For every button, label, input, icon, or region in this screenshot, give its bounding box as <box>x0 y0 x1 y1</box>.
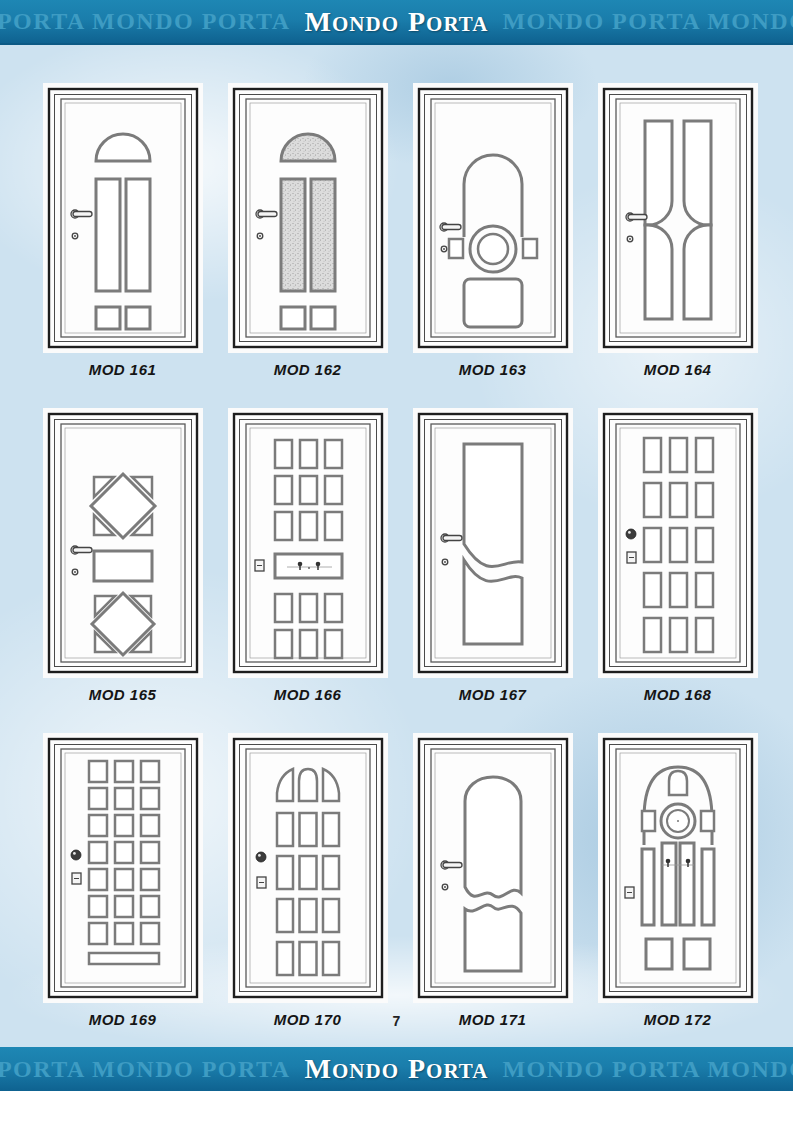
brand-logo: MONDO PORTA <box>291 6 503 38</box>
door-drawing-mod-166 <box>232 412 384 674</box>
logo-initial: M <box>305 1053 332 1085</box>
door-drawing-mod-168 <box>602 412 754 674</box>
logo-initial: P <box>408 1053 426 1085</box>
door-drawing-mod-169 <box>47 737 199 999</box>
logo-initial: M <box>305 6 332 38</box>
header-watermark-left: PORTA MONDO PORTA <box>0 8 291 35</box>
door-card-mod-161: MOD 161 <box>30 45 215 370</box>
door-card-mod-165: MOD 165 <box>30 370 215 695</box>
door-image <box>43 83 203 353</box>
door-drawing-mod-172 <box>602 737 754 999</box>
door-card-mod-169: MOD 169 <box>30 695 215 1020</box>
door-image <box>228 83 388 353</box>
door-image <box>413 83 573 353</box>
door-drawing-mod-161 <box>47 87 199 349</box>
door-drawing-mod-171 <box>417 737 569 999</box>
logo-rest: ONDO <box>332 1059 399 1084</box>
header-banner: PORTA MONDO PORTA MONDO PORTA MONDO PORT… <box>0 0 793 45</box>
page-number: 7 <box>0 1013 793 1029</box>
footer-watermark-left: PORTA MONDO PORTA <box>0 1056 291 1083</box>
logo-initial: P <box>408 6 426 38</box>
door-image <box>43 733 203 1003</box>
door-image <box>413 408 573 678</box>
door-drawing-mod-170 <box>232 737 384 999</box>
door-drawing-mod-162 <box>232 87 384 349</box>
footer-banner: PORTA MONDO PORTA MONDO PORTA MONDO PORT… <box>0 1047 793 1091</box>
sheet-background: MOD 161 MOD 162 <box>0 45 793 1047</box>
door-image <box>228 733 388 1003</box>
doors-grid: MOD 161 MOD 162 <box>30 45 770 1020</box>
door-image <box>228 408 388 678</box>
door-card-mod-166: MOD 166 <box>215 370 400 695</box>
door-card-mod-162: MOD 162 <box>215 45 400 370</box>
door-image <box>598 83 758 353</box>
door-image <box>598 408 758 678</box>
footer-watermark-right: MONDO PORTA MONDO <box>502 1056 793 1083</box>
door-drawing-mod-163 <box>417 87 569 349</box>
door-image <box>598 733 758 1003</box>
door-card-mod-172: MOD 172 <box>585 695 770 1020</box>
door-card-mod-167: MOD 167 <box>400 370 585 695</box>
catalog-page: PORTA MONDO PORTA MONDO PORTA MONDO PORT… <box>0 0 793 1122</box>
door-drawing-mod-165 <box>47 412 199 674</box>
door-card-mod-164: MOD 164 <box>585 45 770 370</box>
door-drawing-mod-167 <box>417 412 569 674</box>
door-card-mod-170: MOD 170 <box>215 695 400 1020</box>
door-image <box>43 408 203 678</box>
door-image <box>413 733 573 1003</box>
logo-rest: ONDO <box>332 12 399 37</box>
logo-rest: ORTA <box>426 1059 488 1084</box>
header-watermark-right: MONDO PORTA MONDO <box>502 8 793 35</box>
door-card-mod-171: MOD 171 <box>400 695 585 1020</box>
brand-logo: MONDO PORTA <box>291 1053 503 1085</box>
door-card-mod-163: MOD 163 <box>400 45 585 370</box>
logo-rest: ORTA <box>426 12 488 37</box>
door-drawing-mod-164 <box>602 87 754 349</box>
door-card-mod-168: MOD 168 <box>585 370 770 695</box>
